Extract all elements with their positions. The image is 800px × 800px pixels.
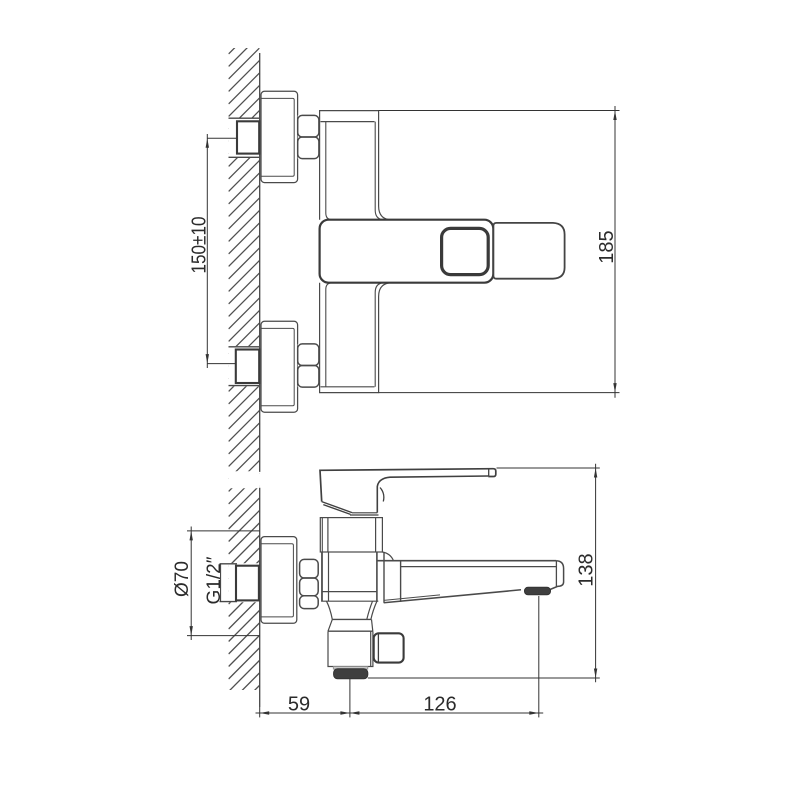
svg-text:G1/2″: G1/2″ — [204, 556, 225, 604]
svg-text:185: 185 — [596, 230, 618, 263]
svg-text:Ø70: Ø70 — [172, 561, 193, 597]
svg-text:126: 126 — [423, 694, 456, 716]
svg-text:138: 138 — [576, 553, 598, 586]
svg-text:150±10: 150±10 — [189, 217, 211, 274]
svg-text:59: 59 — [288, 694, 310, 716]
